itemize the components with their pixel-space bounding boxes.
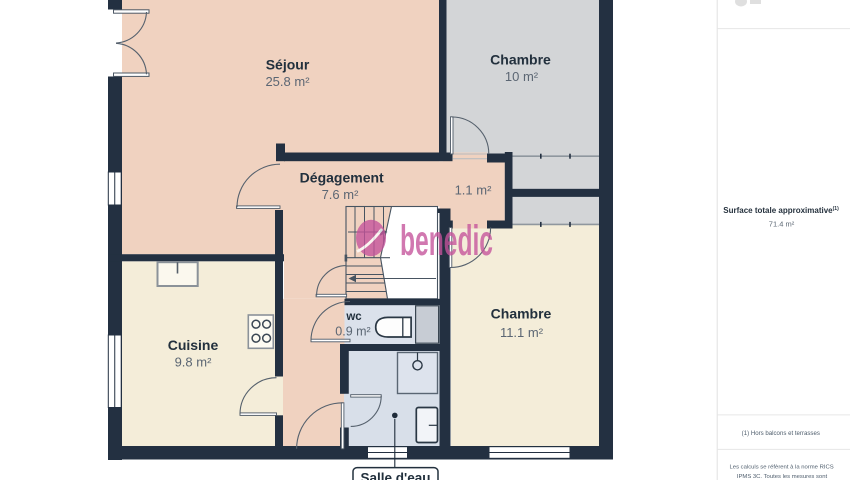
svg-text:25.8 m²: 25.8 m²: [265, 74, 310, 89]
svg-text:7.6 m²: 7.6 m²: [322, 187, 360, 202]
svg-text:10 m²: 10 m²: [505, 69, 539, 84]
svg-text:benedic: benedic: [400, 217, 493, 265]
svg-text:Surface totale approximative(1: Surface totale approximative(1): [723, 206, 839, 215]
svg-text:0.9 m²: 0.9 m²: [335, 325, 370, 339]
svg-text:IPMS 3C. Toutes les mesures so: IPMS 3C. Toutes les mesures sont: [737, 474, 828, 480]
svg-text:Dégagement: Dégagement: [300, 169, 384, 185]
svg-text:Salle d'eau: Salle d'eau: [361, 471, 431, 480]
svg-text:Séjour: Séjour: [266, 56, 310, 72]
svg-text:Chambre: Chambre: [491, 305, 552, 321]
svg-text:9.8 m²: 9.8 m²: [175, 354, 213, 369]
svg-text:Chambre: Chambre: [490, 51, 551, 67]
svg-text:71.4 m²: 71.4 m²: [769, 219, 795, 228]
svg-text:Les calculs se réfèrent à la n: Les calculs se réfèrent à la norme RICS: [730, 465, 834, 471]
svg-text:wc: wc: [345, 311, 362, 323]
svg-text:11.1 m²: 11.1 m²: [500, 325, 544, 340]
svg-text:Cuisine: Cuisine: [168, 337, 219, 353]
svg-text:(1) Hors balcons et terrasses: (1) Hors balcons et terrasses: [742, 430, 820, 437]
svg-text:1.1 m²: 1.1 m²: [455, 183, 493, 198]
